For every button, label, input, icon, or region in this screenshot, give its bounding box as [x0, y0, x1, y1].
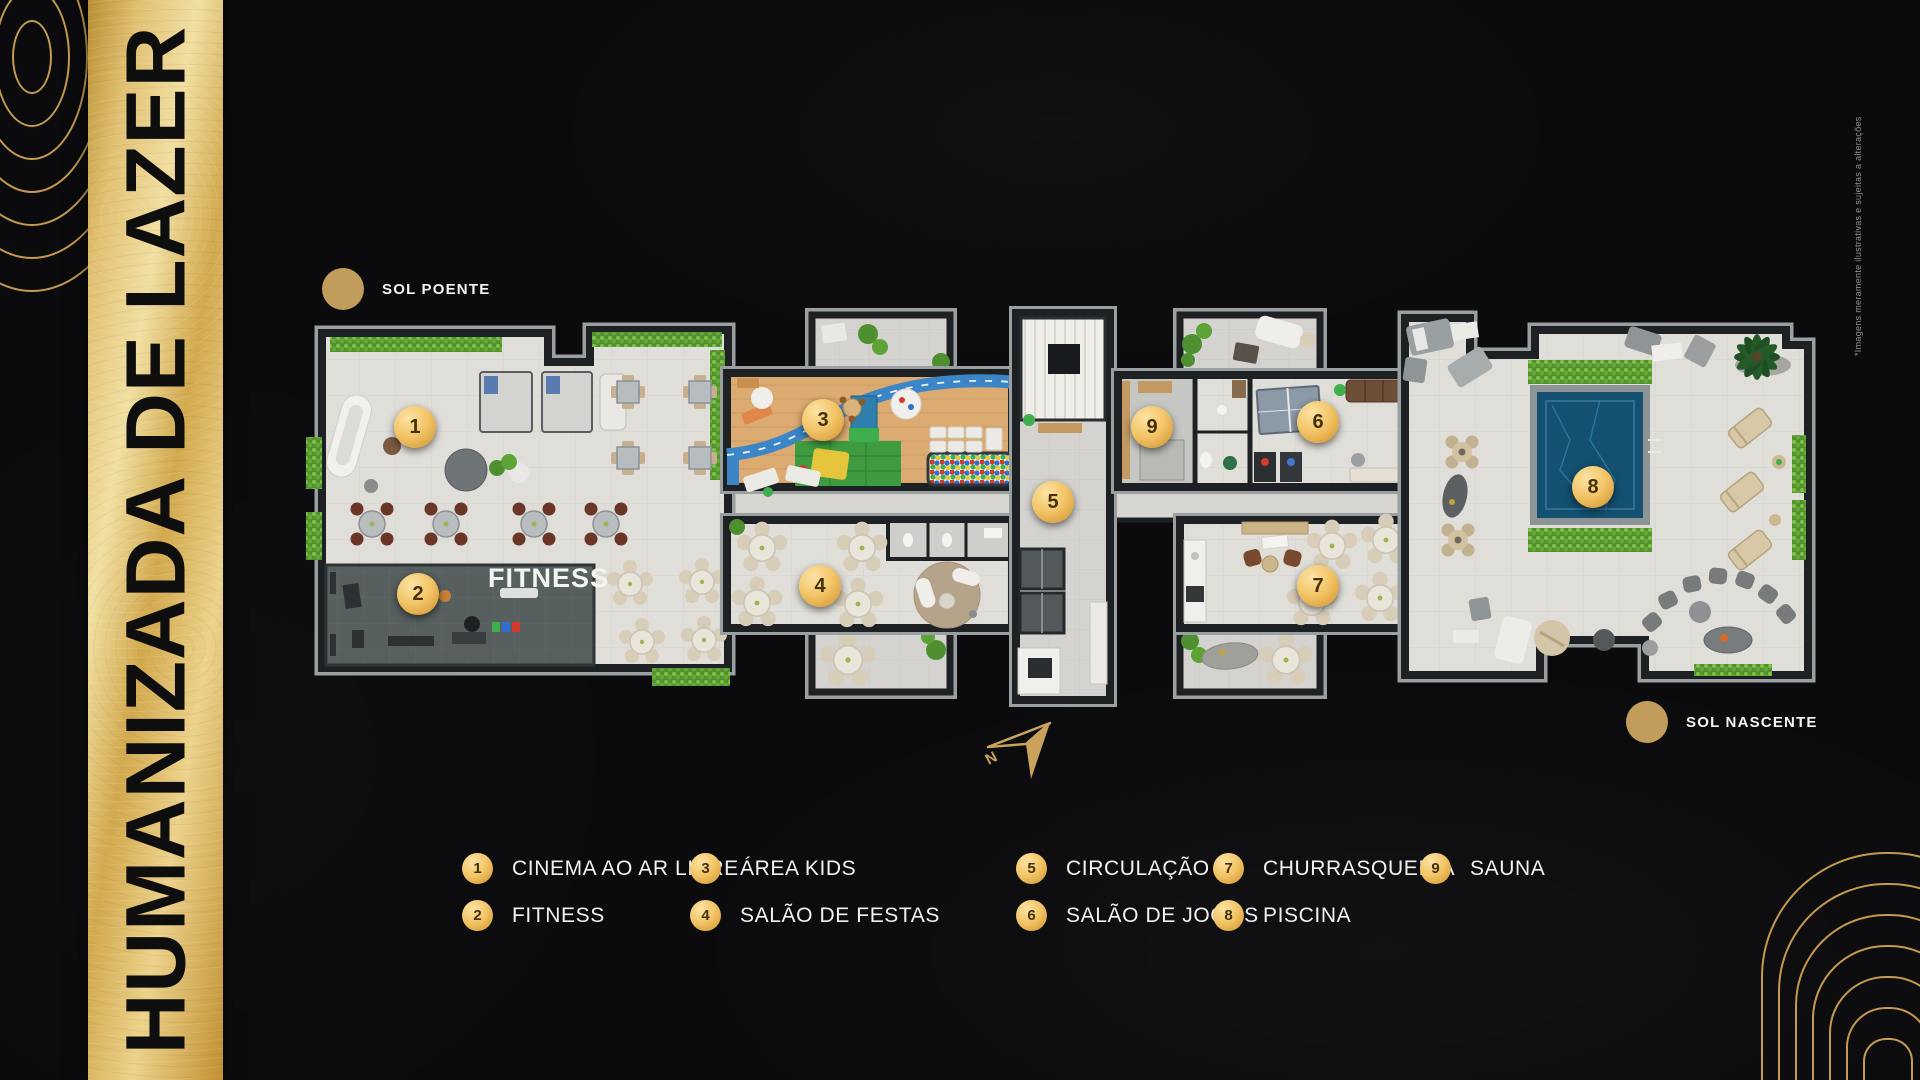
- legend-badge-2: 2: [462, 900, 493, 931]
- legend-item-3: 3ÁREA KIDS: [690, 853, 856, 884]
- legend-item-8: 8PISCINA: [1213, 900, 1351, 931]
- legend-badge-3: 3: [690, 853, 721, 884]
- legend-label-2: FITNESS: [512, 904, 605, 928]
- legend-label-3: ÁREA KIDS: [740, 857, 856, 881]
- legend-label-5: CIRCULAÇÃO: [1066, 857, 1210, 881]
- legend-label-9: SAUNA: [1470, 857, 1545, 881]
- legend-badge-6: 6: [1016, 900, 1047, 931]
- legend-badge-9: 9: [1420, 853, 1451, 884]
- poster-canvas: HUMANIZADA DE LAZER SOL POENTE SOL NASCE…: [0, 0, 1920, 1080]
- legend-label-8: PISCINA: [1263, 904, 1351, 928]
- gold-title-banner: HUMANIZADA DE LAZER: [88, 0, 223, 1080]
- legend-label-4: SALÃO DE FESTAS: [740, 904, 940, 928]
- legend: 1CINEMA AO AR LIVRE2FITNESS3ÁREA KIDS4SA…: [0, 0, 1920, 1080]
- disclaimer-text: *Imagens meramente ilustrativas e sujeit…: [1853, 116, 1863, 356]
- legend-item-2: 2FITNESS: [462, 900, 605, 931]
- legend-item-9: 9SAUNA: [1420, 853, 1545, 884]
- legend-badge-8: 8: [1213, 900, 1244, 931]
- legend-item-7: 7CHURRASQUEIRA: [1213, 853, 1455, 884]
- legend-badge-4: 4: [690, 900, 721, 931]
- legend-item-4: 4SALÃO DE FESTAS: [690, 900, 940, 931]
- page-title: HUMANIZADA DE LAZER: [107, 26, 204, 1054]
- legend-badge-7: 7: [1213, 853, 1244, 884]
- legend-badge-5: 5: [1016, 853, 1047, 884]
- legend-badge-1: 1: [462, 853, 493, 884]
- legend-item-5: 5CIRCULAÇÃO: [1016, 853, 1210, 884]
